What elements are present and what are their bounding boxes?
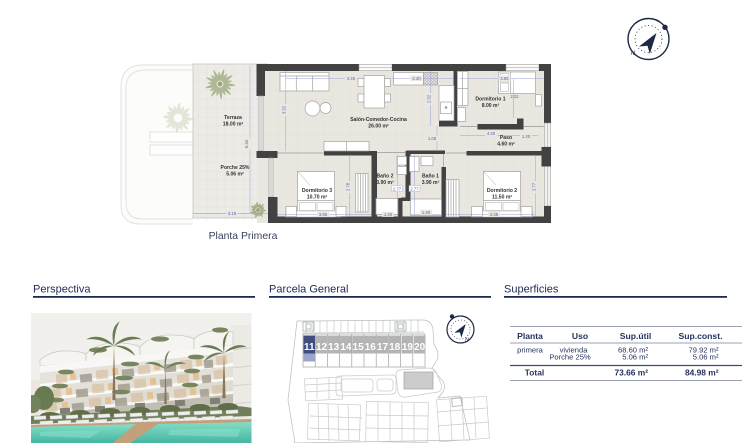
- svg-text:13: 13: [328, 342, 340, 353]
- svg-text:Planta: Planta: [517, 331, 543, 341]
- svg-text:11: 11: [304, 342, 315, 353]
- svg-text:18: 18: [389, 342, 401, 353]
- svg-text:3.32: 3.32: [282, 105, 287, 114]
- svg-text:Parcela General: Parcela General: [269, 284, 349, 296]
- svg-text:15: 15: [353, 342, 365, 353]
- svg-text:5.06 m²: 5.06 m²: [693, 353, 719, 362]
- svg-text:4.60 m²: 4.60 m²: [497, 142, 515, 148]
- svg-text:Terraza: Terraza: [224, 115, 242, 121]
- svg-text:18.00 m²: 18.00 m²: [223, 122, 244, 128]
- svg-text:Salón-Comedor-Cocina: Salón-Comedor-Cocina: [350, 117, 407, 123]
- svg-text:2.22: 2.22: [510, 94, 519, 99]
- svg-text:2.40: 2.40: [412, 76, 421, 81]
- svg-text:primera: primera: [517, 346, 544, 355]
- svg-text:16: 16: [365, 342, 377, 353]
- svg-text:1.20: 1.20: [522, 134, 531, 139]
- svg-text:3.45: 3.45: [347, 76, 356, 81]
- svg-text:Dormitorio 3: Dormitorio 3: [302, 188, 332, 194]
- svg-text:Planta Primera: Planta Primera: [209, 231, 278, 242]
- svg-text:Baño 2: Baño 2: [377, 174, 394, 180]
- svg-text:Porche 25%: Porche 25%: [549, 353, 591, 362]
- svg-text:3.90 m²: 3.90 m²: [422, 180, 440, 186]
- svg-text:84.98 m²: 84.98 m²: [685, 368, 719, 378]
- svg-text:2.78: 2.78: [346, 182, 351, 191]
- svg-text:3.19: 3.19: [228, 211, 237, 216]
- svg-text:Total: Total: [525, 368, 544, 378]
- svg-text:12: 12: [316, 342, 328, 353]
- svg-text:26.00 m²: 26.00 m²: [368, 124, 389, 130]
- svg-text:5.06 m²: 5.06 m²: [622, 353, 648, 362]
- svg-text:4.35: 4.35: [490, 212, 499, 217]
- svg-text:8.00 m²: 8.00 m²: [482, 103, 500, 109]
- svg-text:Baño 1: Baño 1: [422, 174, 439, 180]
- svg-text:Porche 25%: Porche 25%: [221, 165, 250, 171]
- svg-text:Paso: Paso: [500, 135, 512, 141]
- svg-text:3.95: 3.95: [319, 212, 328, 217]
- svg-text:Dormitorio 2: Dormitorio 2: [487, 188, 517, 194]
- svg-text:Dormitorio 1: Dormitorio 1: [475, 97, 505, 103]
- svg-text:2.32: 2.32: [427, 94, 432, 103]
- svg-text:Perspectiva: Perspectiva: [33, 284, 91, 296]
- svg-text:5.06 m²: 5.06 m²: [226, 172, 244, 178]
- svg-text:Sup.útil: Sup.útil: [620, 331, 652, 341]
- svg-text:2.77: 2.77: [532, 182, 537, 191]
- svg-text:1.40: 1.40: [422, 210, 431, 215]
- svg-text:4.40: 4.40: [487, 131, 496, 136]
- svg-text:2.77: 2.77: [393, 186, 402, 191]
- svg-text:20: 20: [414, 342, 426, 353]
- svg-text:2.77: 2.77: [410, 186, 419, 191]
- svg-text:19: 19: [402, 342, 414, 353]
- svg-text:1.40: 1.40: [384, 212, 393, 217]
- svg-text:14: 14: [340, 342, 352, 353]
- svg-text:N: N: [465, 338, 469, 344]
- svg-text:73.66 m²: 73.66 m²: [614, 368, 648, 378]
- svg-text:Sup.const.: Sup.const.: [679, 331, 723, 341]
- svg-text:3.90 m²: 3.90 m²: [376, 180, 394, 186]
- svg-text:1.08: 1.08: [428, 136, 437, 141]
- svg-text:6.34: 6.34: [244, 139, 249, 148]
- svg-text:N: N: [631, 50, 636, 57]
- svg-text:Superficies: Superficies: [504, 284, 559, 296]
- svg-text:11.50 m²: 11.50 m²: [492, 195, 512, 201]
- svg-text:Uso: Uso: [572, 331, 588, 341]
- svg-text:17: 17: [377, 342, 389, 353]
- svg-text:10.70 m²: 10.70 m²: [307, 195, 328, 201]
- svg-text:3.65: 3.65: [500, 76, 509, 81]
